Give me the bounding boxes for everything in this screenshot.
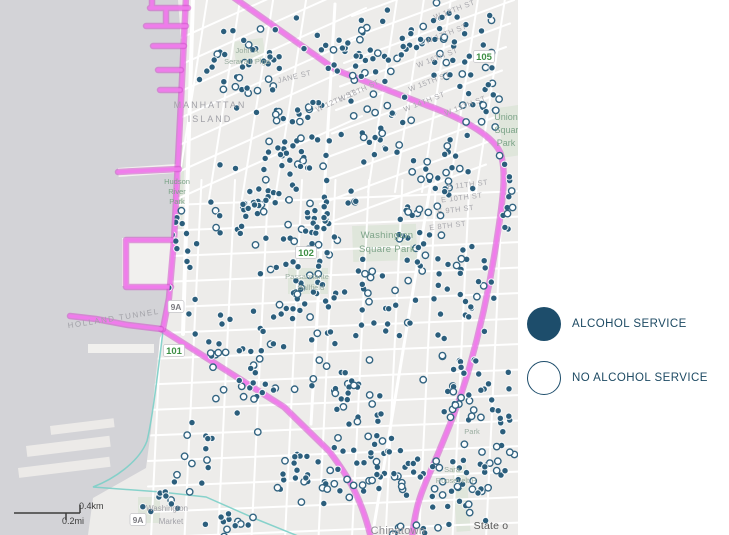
map-label: Square Park	[359, 244, 415, 255]
map-label: Washington	[146, 504, 188, 513]
map-label: Roosevelt P	[436, 476, 476, 485]
map-label: Park	[464, 427, 480, 436]
legend-item-alcohol-service[interactable]: ALCOHOL SERVICE	[527, 307, 708, 341]
map-label: John A	[236, 46, 259, 55]
map-label: Passannante	[285, 272, 329, 281]
map-label: Sara	[444, 465, 461, 474]
map-label: ISLAND	[188, 114, 233, 124]
map-label: State o	[474, 520, 509, 532]
pier-shape	[122, 238, 172, 286]
map-label: Washington	[361, 230, 414, 241]
no-alcohol-service-swatch-icon	[527, 361, 561, 395]
svg-text:102: 102	[298, 248, 314, 259]
map-label: Chinatown	[371, 525, 426, 535]
svg-text:101: 101	[166, 346, 183, 357]
map-label: Park	[169, 197, 185, 206]
legend-item-no-alcohol-service[interactable]: NO ALCOHOL SERVICE	[527, 361, 708, 395]
pier-shape	[88, 344, 154, 353]
legend: ALCOHOL SERVICE NO ALCOHOL SERVICE	[527, 307, 708, 395]
map-label: Seravalli Plgd	[224, 57, 270, 66]
scale-km-label: 0.4km	[79, 501, 104, 511]
legend-label-no-alcohol-service: NO ALCOHOL SERVICE	[572, 372, 708, 384]
map-label: MANHATTAN	[174, 100, 247, 110]
map-label: Square	[494, 125, 518, 135]
svg-text:9A: 9A	[171, 302, 182, 312]
legend-label-alcohol-service: ALCOHOL SERVICE	[572, 318, 687, 330]
map-label: Park	[497, 138, 516, 148]
map-label: River	[168, 187, 186, 196]
alcohol-service-swatch-icon	[527, 307, 561, 341]
map-label: Market	[159, 517, 184, 526]
map-label: Union	[494, 112, 518, 122]
map-label: Hudson	[164, 177, 190, 186]
scale-mi-label: 0.2mi	[62, 516, 84, 526]
svg-text:105: 105	[476, 52, 493, 63]
svg-text:9A: 9A	[133, 515, 144, 525]
map-label: Ballfield	[298, 283, 324, 292]
map-canvas[interactable]: MANHATTANISLANDHOLLAND TUNNELHudsonRiver…	[0, 0, 518, 535]
